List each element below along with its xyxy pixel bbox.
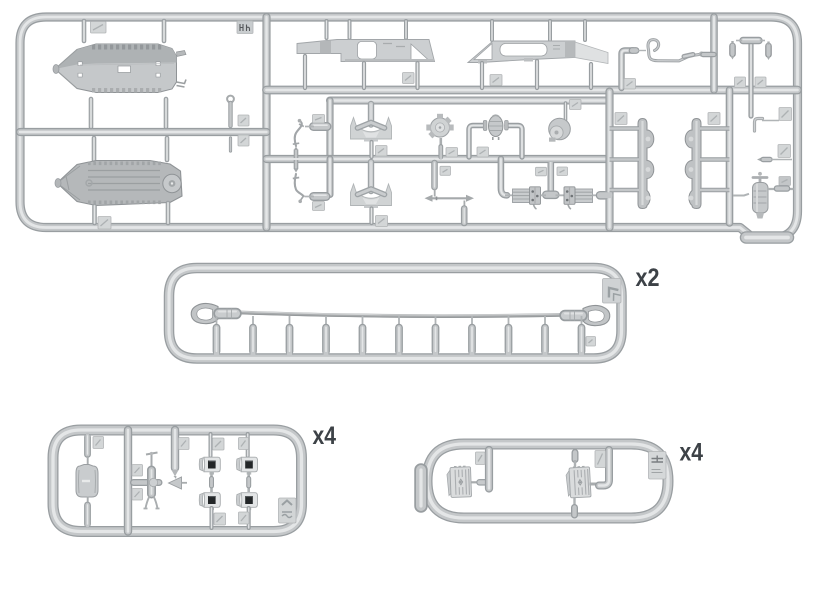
svg-text:x4: x4 <box>313 422 337 450</box>
svg-text:x4: x4 <box>680 439 704 467</box>
svg-text:x2: x2 <box>636 264 660 292</box>
